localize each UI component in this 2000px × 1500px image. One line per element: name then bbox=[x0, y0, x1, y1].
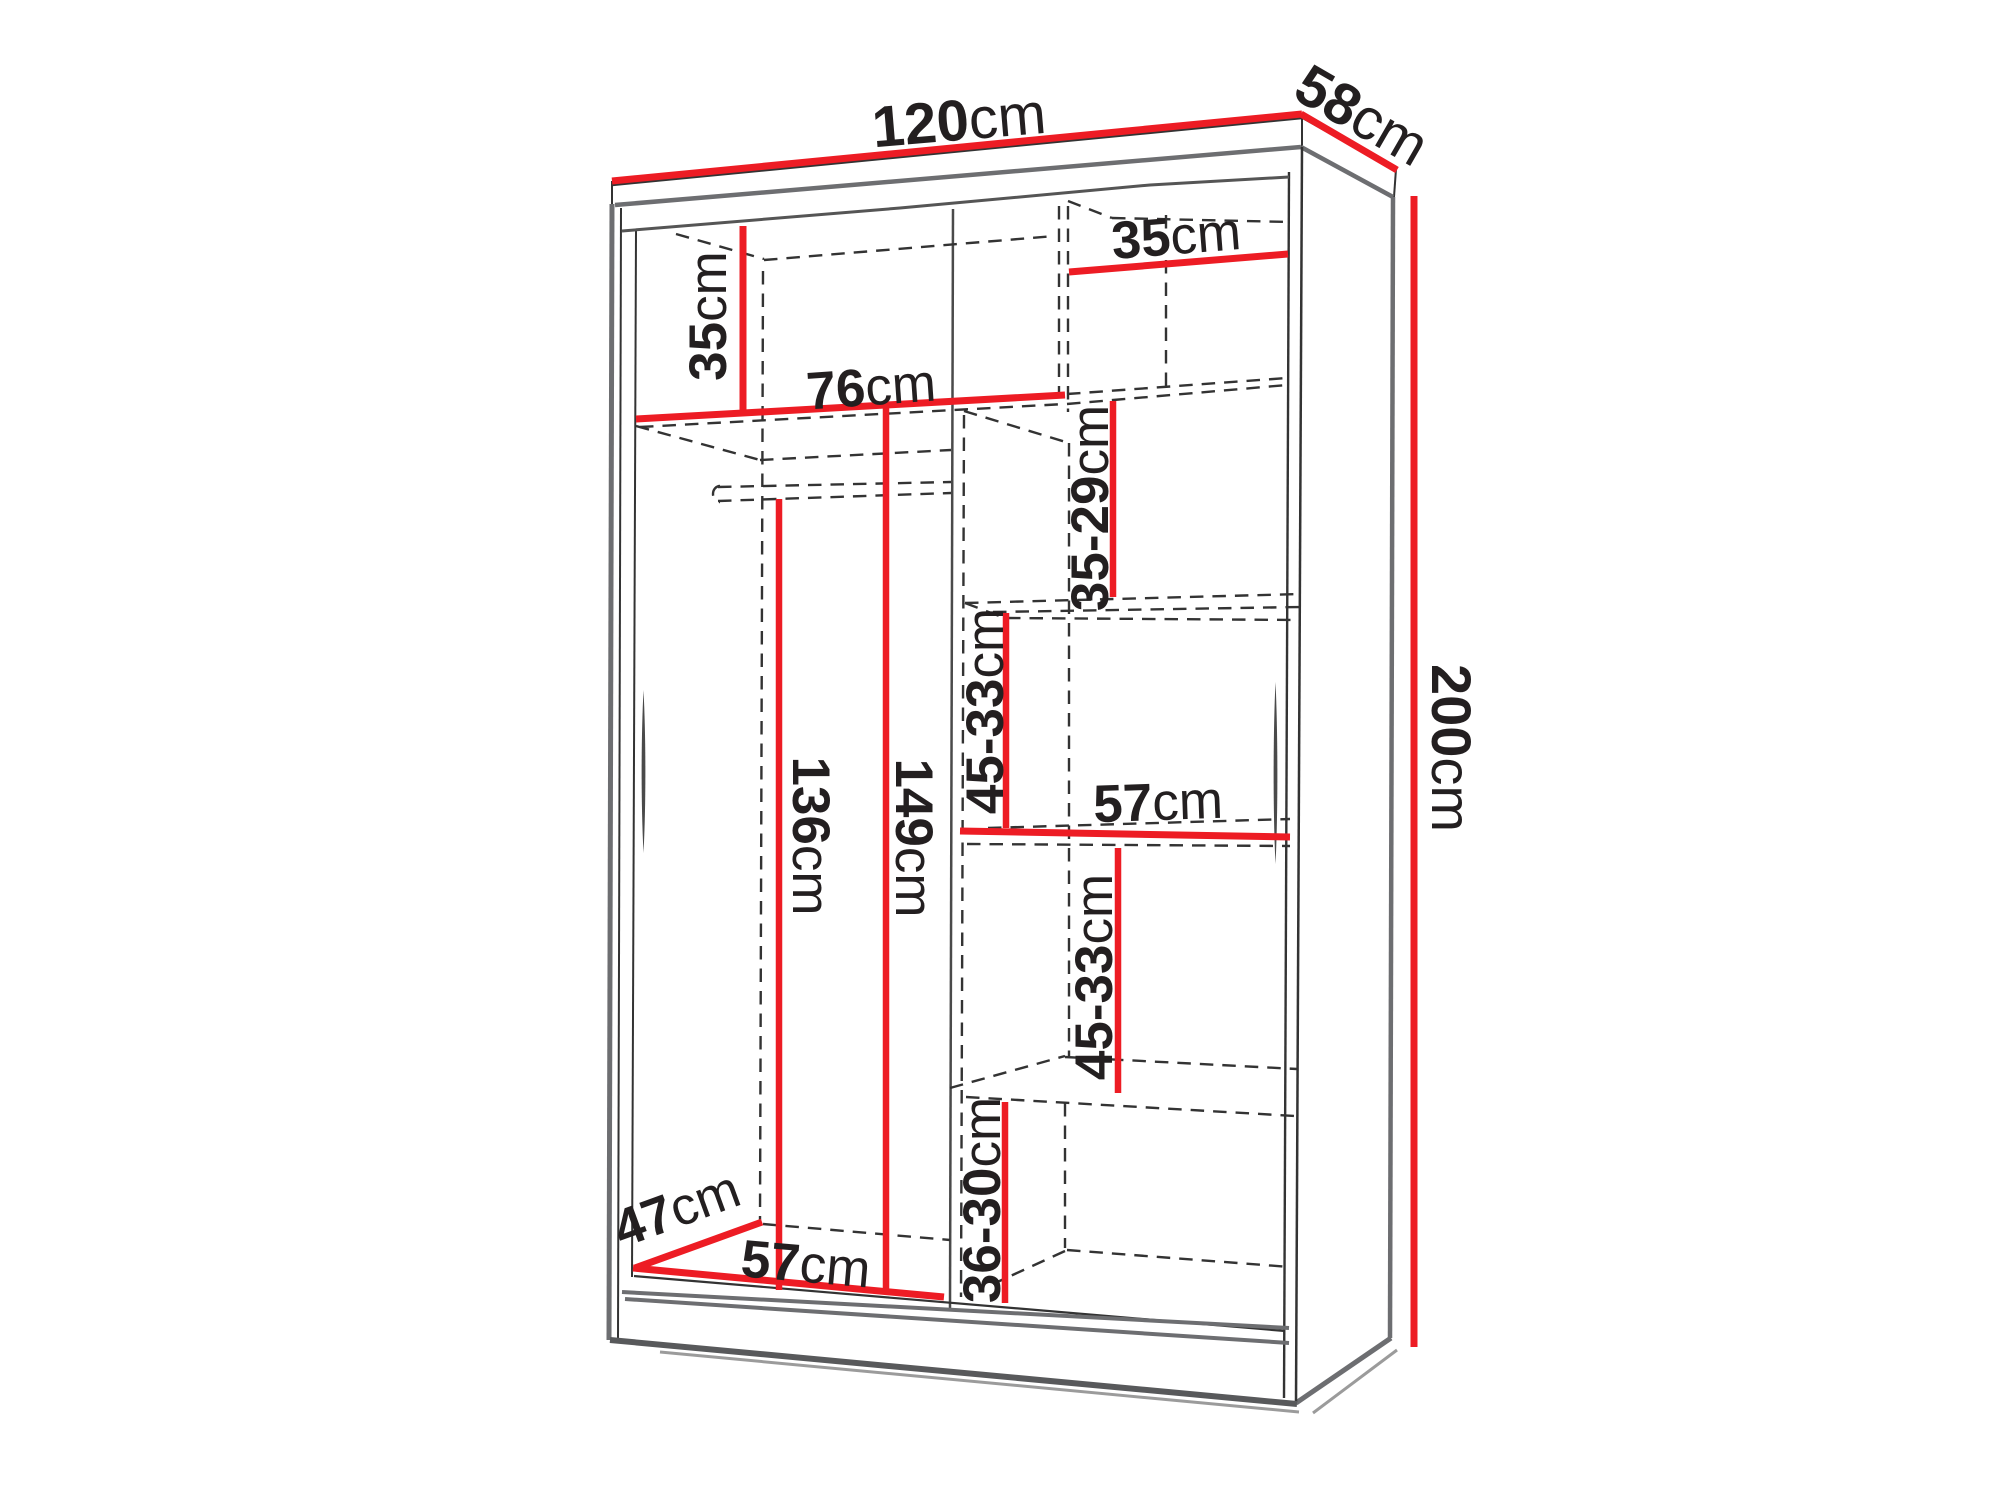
svg-text:36-30cm: 36-30cm bbox=[953, 1097, 1012, 1303]
svg-text:200cm: 200cm bbox=[1420, 664, 1483, 832]
svg-text:57cm: 57cm bbox=[1092, 771, 1224, 834]
svg-text:45-33cm: 45-33cm bbox=[1065, 874, 1124, 1080]
svg-text:136cm: 136cm bbox=[781, 756, 840, 915]
svg-text:58cm: 58cm bbox=[1284, 52, 1439, 179]
svg-text:57cm: 57cm bbox=[739, 1229, 873, 1299]
svg-text:35cm: 35cm bbox=[1109, 202, 1243, 271]
svg-text:47cm: 47cm bbox=[606, 1159, 748, 1259]
svg-text:76cm: 76cm bbox=[804, 354, 937, 422]
svg-text:35-29cm: 35-29cm bbox=[1061, 405, 1120, 611]
svg-text:45-33cm: 45-33cm bbox=[956, 608, 1015, 814]
svg-text:149cm: 149cm bbox=[884, 758, 943, 917]
svg-text:35cm: 35cm bbox=[679, 251, 738, 381]
svg-text:120cm: 120cm bbox=[870, 81, 1049, 160]
